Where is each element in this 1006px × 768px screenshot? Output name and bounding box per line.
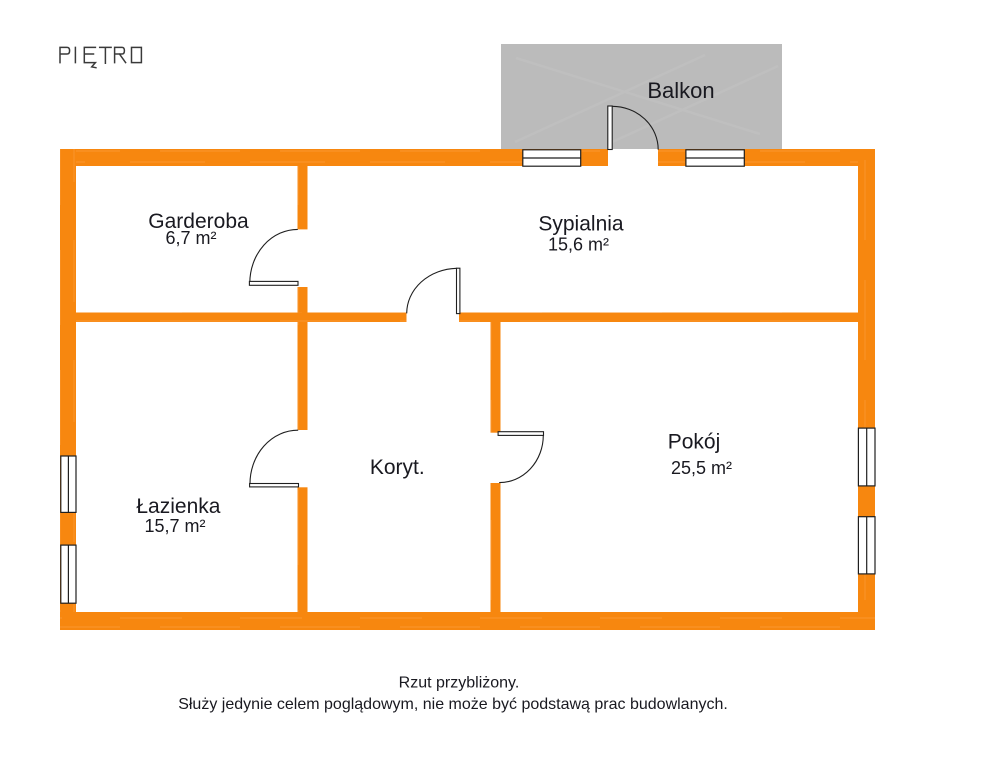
svg-text:6,7 m²: 6,7 m² — [165, 228, 216, 248]
svg-text:Łazienka: Łazienka — [136, 495, 220, 518]
svg-text:15,7 m²: 15,7 m² — [144, 516, 205, 536]
svg-text:Sypialnia: Sypialnia — [538, 213, 624, 236]
svg-text:Balkon: Balkon — [647, 78, 714, 103]
svg-text:Pokój: Pokój — [668, 431, 721, 454]
svg-text:Służy jedynie celem poglądowym: Służy jedynie celem poglądowym, nie może… — [178, 696, 728, 713]
svg-text:15,6 m²: 15,6 m² — [548, 235, 609, 255]
svg-text:25,5 m²: 25,5 m² — [671, 458, 732, 478]
svg-text:Rzut przybliżony.: Rzut przybliżony. — [399, 675, 520, 692]
svg-text:Koryt.: Koryt. — [370, 456, 425, 479]
